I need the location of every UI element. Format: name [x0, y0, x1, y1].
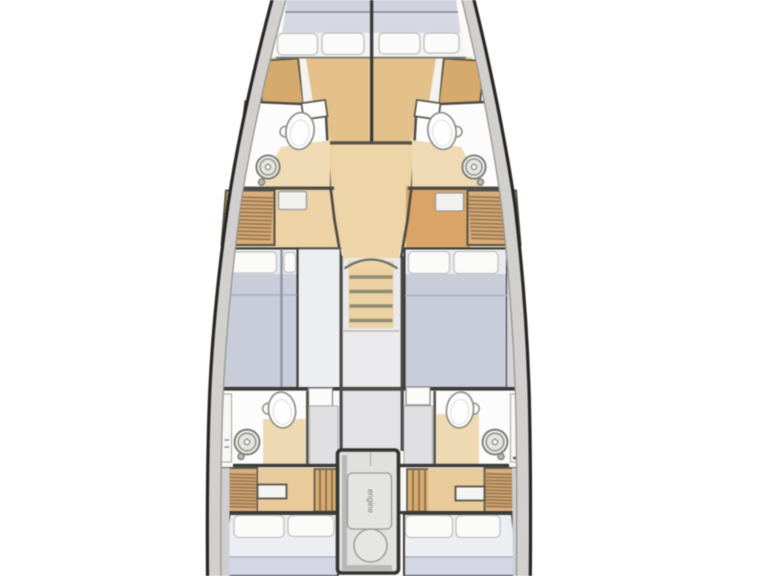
svg-text:engine: engine	[366, 489, 375, 514]
